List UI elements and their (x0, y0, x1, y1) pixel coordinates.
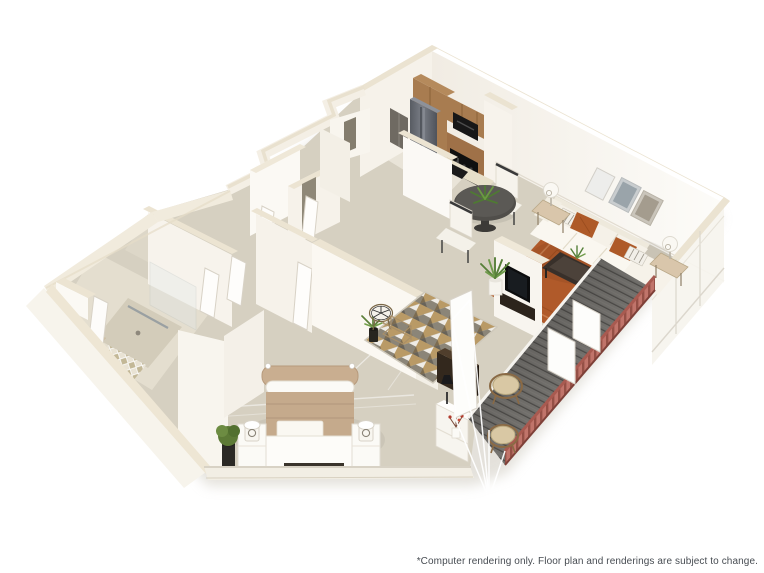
bed (260, 363, 360, 470)
bedside-lamp (244, 421, 260, 442)
bottom-outer-wall (204, 466, 474, 480)
disclaimer-text: *Computer rendering only. Floor plan and… (417, 556, 758, 567)
shower-drain (136, 331, 141, 336)
floor-plan-page: *Computer rendering only. Floor plan and… (0, 0, 764, 573)
floorplan-rendering (0, 0, 764, 573)
bed-throw (277, 421, 323, 438)
bedside-lamp (358, 421, 374, 442)
